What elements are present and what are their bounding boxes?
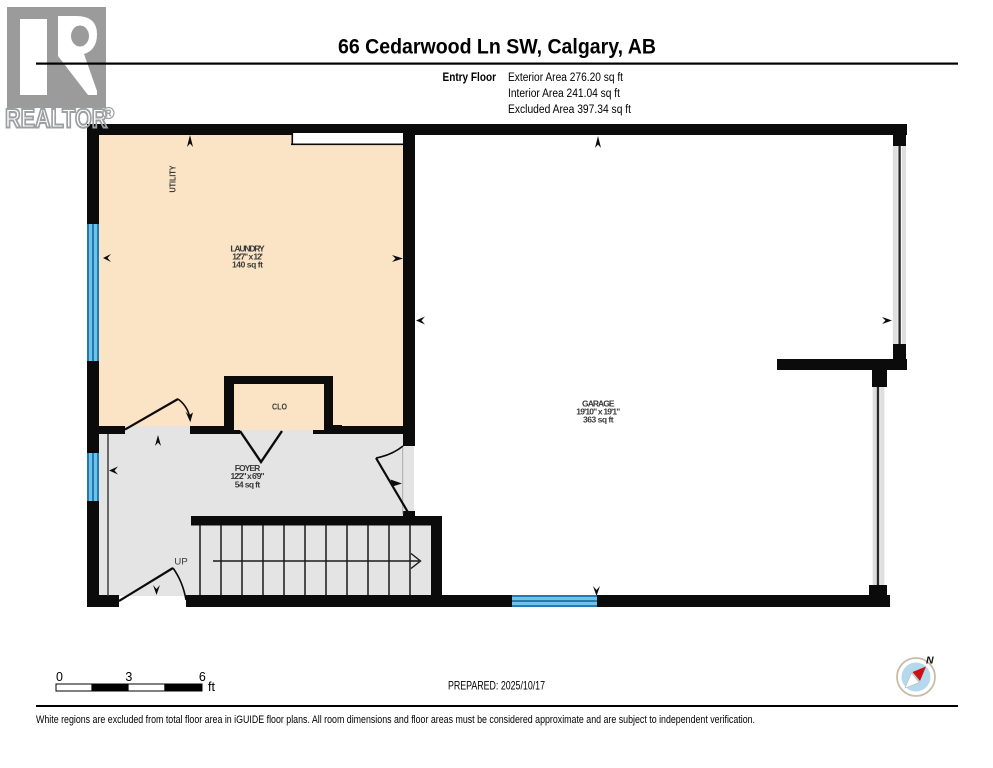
- svg-text:Entry Floor: Entry Floor: [443, 72, 497, 84]
- svg-text:ft: ft: [208, 680, 215, 694]
- svg-text:0: 0: [56, 670, 63, 684]
- svg-text:363 sq ft: 363 sq ft: [583, 415, 614, 425]
- svg-text:UTILITY: UTILITY: [168, 165, 178, 192]
- svg-text:Exterior Area 276.20 sq ft: Exterior Area 276.20 sq ft: [508, 72, 624, 84]
- svg-text:REALTOR: REALTOR: [5, 104, 108, 134]
- svg-text:UP: UP: [174, 557, 188, 568]
- svg-text:R: R: [106, 109, 112, 118]
- svg-text:6: 6: [199, 670, 206, 684]
- svg-text:PREPARED: 2025/10/17: PREPARED: 2025/10/17: [448, 679, 545, 693]
- svg-text:54 sq ft: 54 sq ft: [235, 479, 261, 489]
- svg-text:CLO: CLO: [272, 402, 287, 412]
- svg-text:Excluded Area 397.34 sq ft: Excluded Area 397.34 sq ft: [508, 104, 632, 116]
- svg-text:3: 3: [125, 670, 132, 684]
- svg-text:White regions are excluded fro: White regions are excluded from total fl…: [36, 714, 755, 726]
- svg-text:Interior Area 241.04 sq ft: Interior Area 241.04 sq ft: [508, 88, 621, 100]
- svg-text:N: N: [926, 655, 934, 667]
- svg-text:140 sq ft: 140 sq ft: [232, 260, 263, 270]
- svg-text:66 Cedarwood Ln SW, Calgary, A: 66 Cedarwood Ln SW, Calgary, AB: [338, 35, 656, 59]
